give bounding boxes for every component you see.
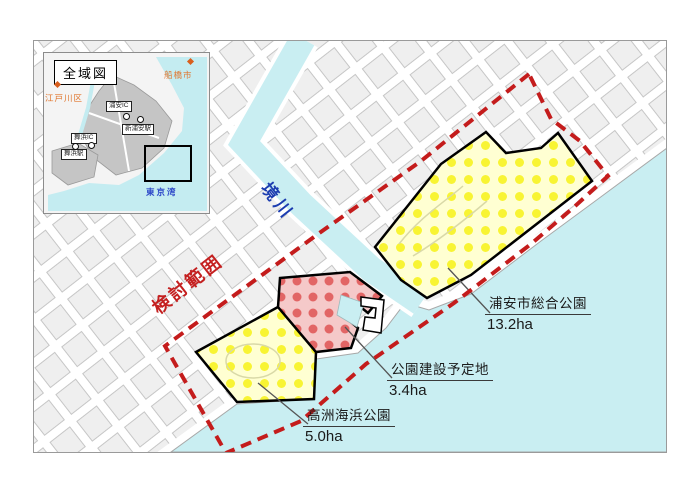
map-figure: 境川 検討範囲 浦安市総合公園 13.2ha 公園建設予定地 3.4ha 高洲海… (0, 0, 700, 495)
inset-title: 全域図 (54, 60, 117, 85)
site-name: 浦安市総合公園 (485, 292, 591, 315)
bay-label: 東京湾 (146, 186, 178, 198)
focus-area-rectangle (144, 145, 192, 182)
site-name: 公園建設予定地 (387, 358, 493, 381)
label-urayasu-sogo-park: 浦安市総合公園 13.2ha (485, 292, 591, 333)
city-label-edogawa: 江戸川区 (45, 92, 83, 104)
site-name: 高洲海浜公園 (303, 404, 395, 427)
station-label-urayasu-ic: 浦安IC (106, 101, 132, 112)
site-area: 13.2ha (485, 315, 591, 333)
station-label-shin-urayasu: 新浦安駅 (122, 124, 154, 135)
station-label-maihama: 舞浜駅 (61, 149, 87, 160)
label-takasu-park: 高洲海浜公園 5.0ha (303, 404, 395, 445)
site-area: 3.4ha (387, 381, 493, 399)
inset-overview-map: 全域図 船橋市 江戸川区 浦安IC 新浦安駅 舞浜IC 舞浜駅 東京湾 (43, 52, 210, 214)
city-label-funabashi: 船橋市 (164, 69, 193, 81)
station-marker-icon (123, 113, 130, 120)
label-planned-park-site: 公園建設予定地 3.4ha (387, 358, 493, 399)
site-area: 5.0ha (303, 427, 395, 445)
station-marker-icon (88, 142, 95, 149)
station-marker-icon (72, 143, 79, 150)
station-marker-icon (137, 116, 144, 123)
